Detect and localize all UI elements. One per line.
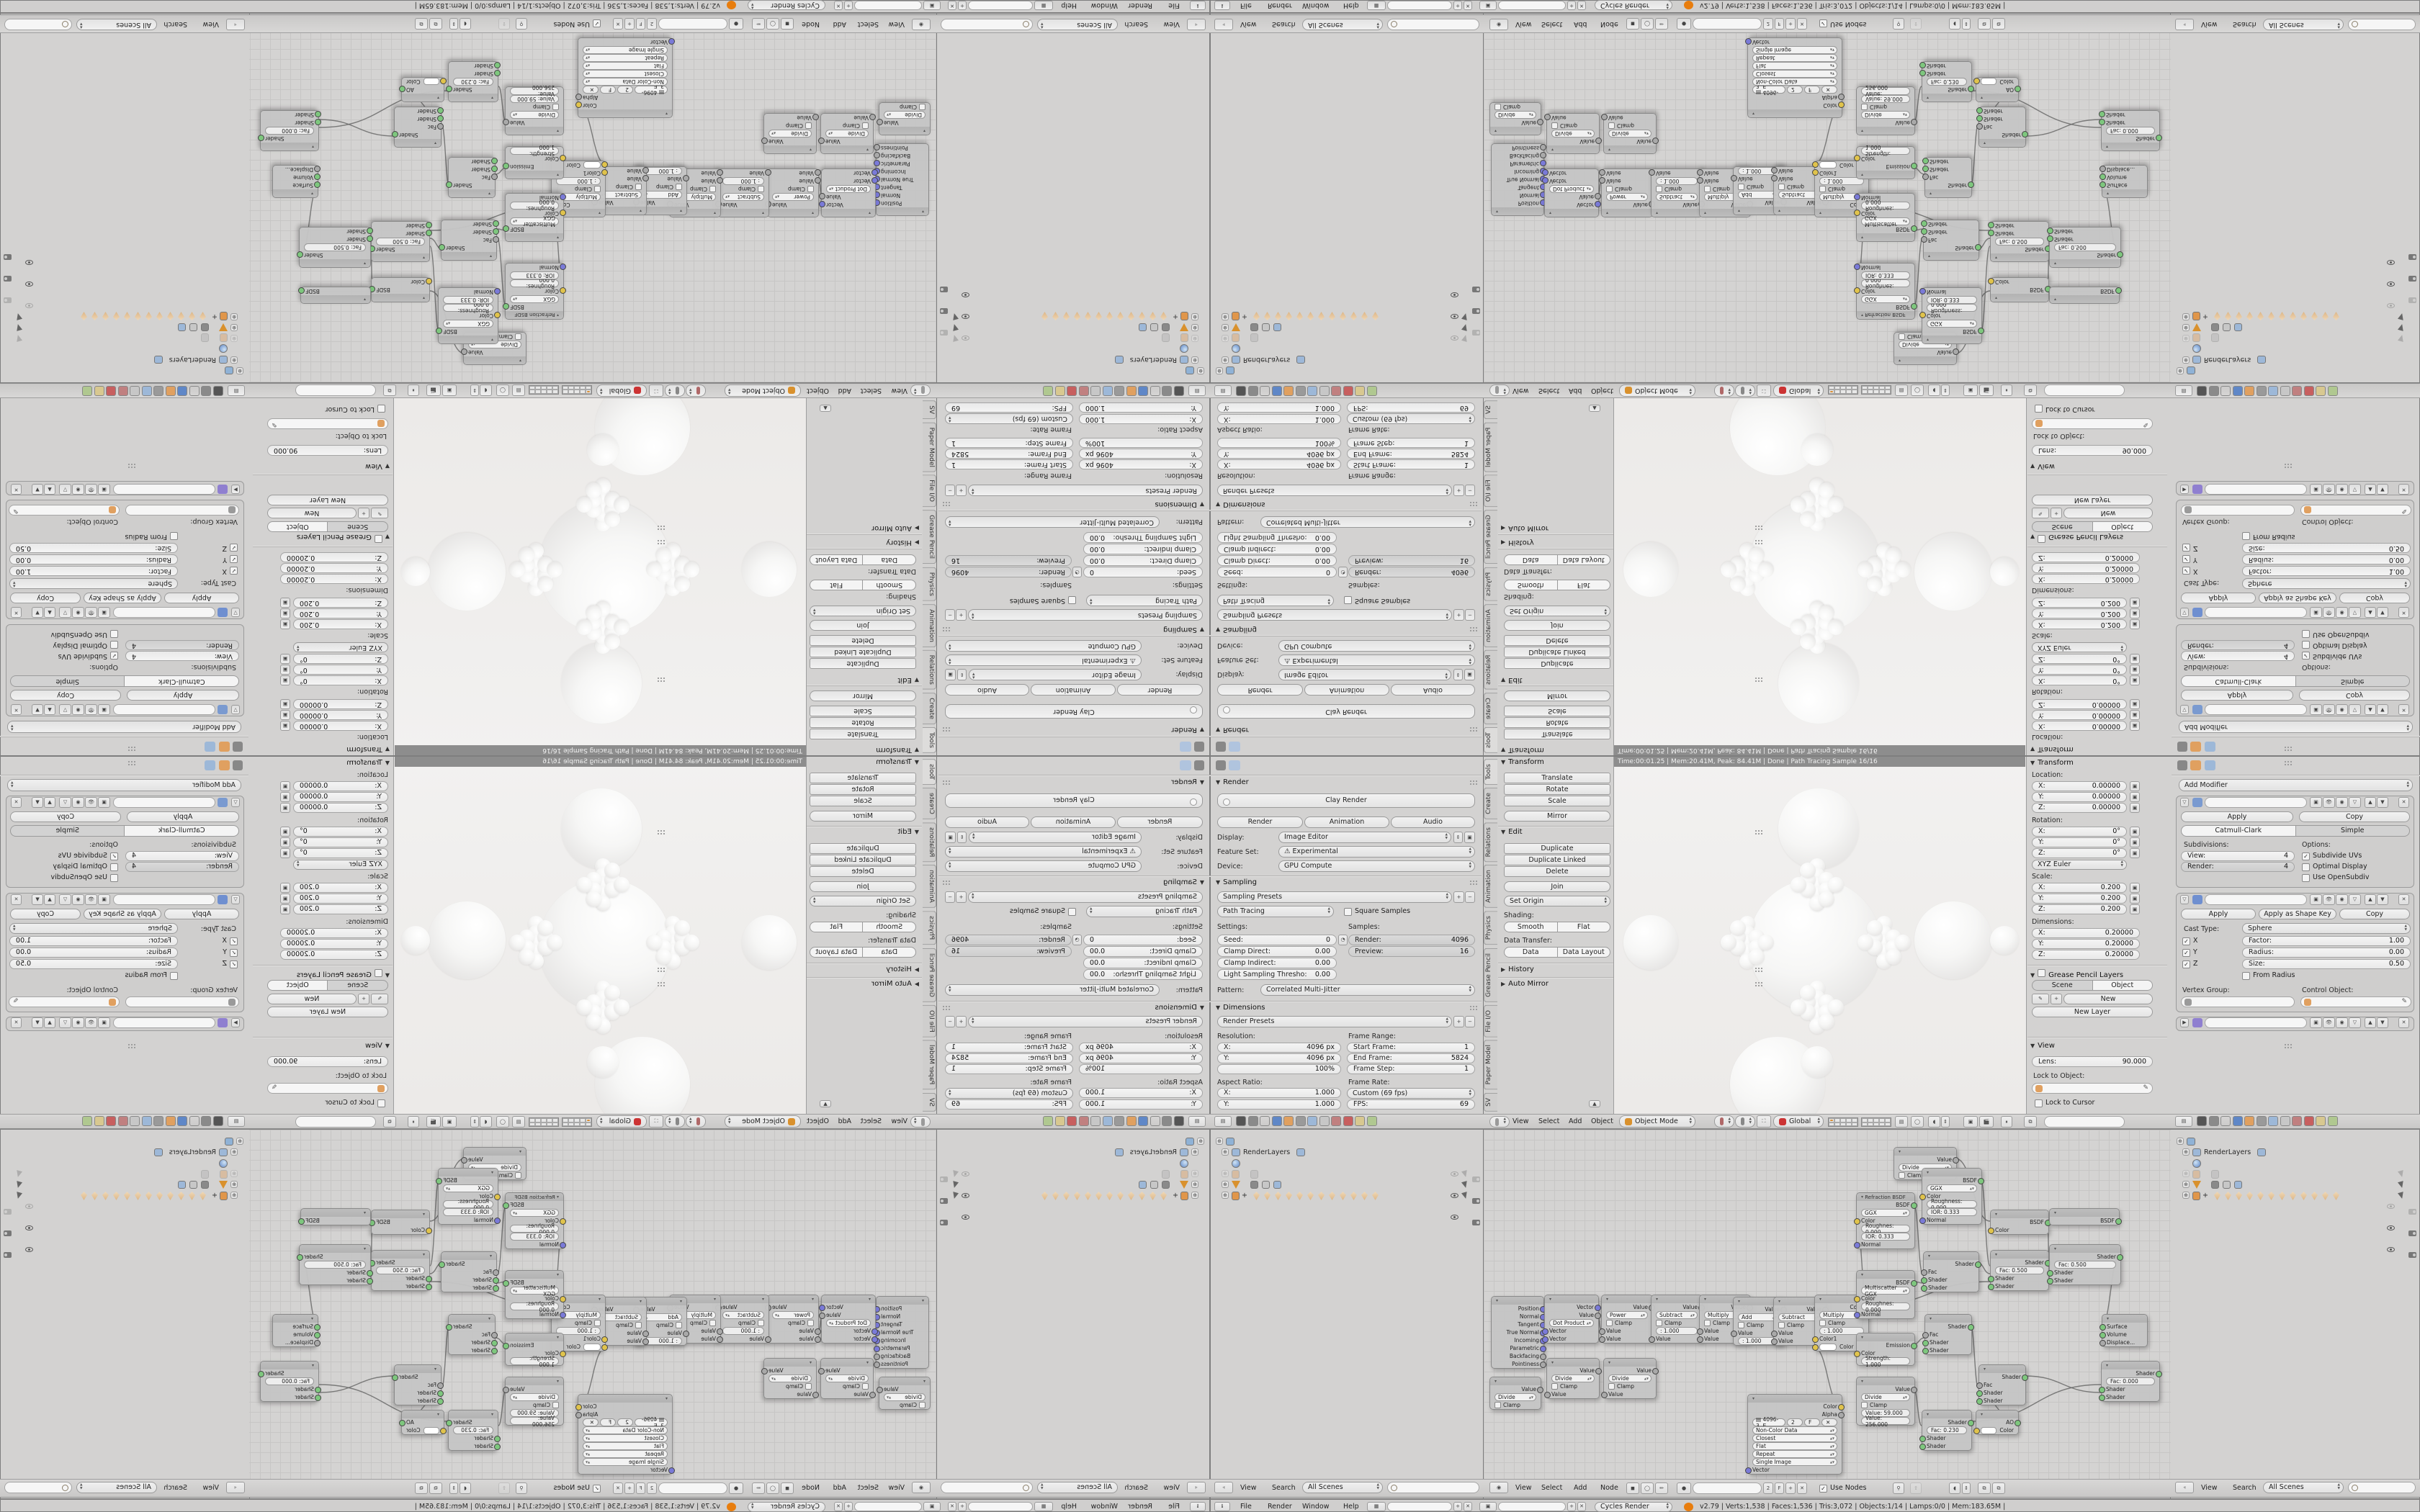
field-frame-step[interactable]: Frame Step:1 [1347, 438, 1475, 448]
input-socket[interactable] [426, 1276, 432, 1282]
input-socket[interactable] [1988, 1276, 1994, 1282]
menu-view[interactable]: View [876, 20, 905, 27]
image-users[interactable]: 2 [617, 1418, 633, 1426]
checkbox-icon[interactable] [919, 104, 926, 110]
output-socket[interactable] [575, 94, 582, 100]
dropdown-render-presets[interactable]: Render Presets▲▼ [968, 485, 1203, 496]
node-refraction-bsdf[interactable]: ▾ Refraction BSDFBSDFGGX▲▼ColorRoughnes:… [505, 263, 564, 320]
button-clay-render[interactable]: Clay Render [1217, 704, 1475, 719]
output-socket[interactable] [392, 131, 398, 138]
search-field[interactable] [941, 1482, 1033, 1493]
tab-render-layers-icon[interactable] [1248, 1116, 1258, 1126]
input-socket[interactable] [494, 288, 501, 294]
toolshelf-tab-tools[interactable]: Tools [923, 727, 936, 753]
node-mix-shader[interactable]: ▾ ShaderFacShaderShader [448, 157, 496, 198]
tool-button-blank[interactable]: 👁 [2323, 894, 2335, 905]
input-socket[interactable] [367, 228, 373, 234]
segment-simple[interactable]: Simple [2296, 675, 2411, 687]
node-mix-shader[interactable]: ▾ ShaderFac: 0.000ShaderShader [2101, 1361, 2160, 1402]
menu-search[interactable]: Search [158, 20, 187, 27]
field-fps[interactable]: FPS:69 [1347, 402, 1475, 413]
input-field[interactable] [295, 1116, 376, 1128]
renderable-camera-icon[interactable] [1472, 308, 1480, 314]
segmented-smooth-flat[interactable]: SmoothFlat [810, 922, 916, 932]
tab-constraints-icon[interactable] [1115, 1116, 1125, 1126]
menu-add[interactable]: Add [817, 20, 846, 27]
lock-icon[interactable]: ▣ [2130, 619, 2140, 629]
dropdown-xyz-euler[interactable]: XYZ Euler▲▼ [293, 642, 388, 652]
field-y[interactable]: Y:0.200 [293, 608, 388, 618]
menu-select[interactable]: Select [853, 387, 882, 394]
checkbox-from-radius[interactable]: From Radius [99, 972, 178, 979]
field-y[interactable]: Y:4096 px [1217, 1053, 1341, 1063]
output-socket[interactable] [1975, 1261, 1981, 1268]
output-socket[interactable] [818, 1368, 825, 1374]
tool-button-blank[interactable]: ⇕ [957, 669, 967, 680]
node-mix-shader[interactable]: ▾ ShaderFac: 0.230ShaderShader [1922, 61, 1972, 102]
input-field[interactable] [2205, 797, 2307, 808]
tool-button-blank[interactable]: ▲ [2365, 704, 2376, 715]
node-dropdown-flat[interactable]: Flat▲▼ [1752, 62, 1837, 70]
field-z[interactable]: Z:0.20000 [280, 950, 388, 960]
visibility-eye-icon[interactable] [962, 336, 969, 341]
output-socket[interactable] [874, 1346, 880, 1352]
tool-button-blank[interactable]: ▶ [231, 1018, 240, 1027]
tab-physics-icon[interactable] [83, 1116, 93, 1126]
node-field[interactable]: Roughnes: 0.000 [510, 202, 559, 210]
node-material-output[interactable]: ▾ SurfaceVolumeDisplace... [2102, 165, 2148, 198]
checkbox-icon[interactable] [1656, 186, 1662, 192]
checkbox-icon[interactable] [1608, 1383, 1615, 1390]
layers-widget[interactable] [562, 385, 592, 395]
field-light-sampling-thresho[interactable]: Light Sampling Thresho:0.00 [1083, 532, 1203, 543]
renderable-camera-icon[interactable] [2408, 297, 2416, 303]
tab-object-data-icon[interactable] [130, 1116, 140, 1126]
output-socket[interactable] [1838, 1404, 1845, 1410]
button-audio[interactable]: Audio [1391, 684, 1475, 696]
input-socket[interactable] [437, 1390, 444, 1397]
field-clamp-indirect[interactable]: Clamp Indirect:0.00 [1217, 544, 1337, 554]
lock-icon[interactable]: ▣ [2130, 792, 2140, 802]
button-copy[interactable]: Copy [10, 593, 81, 603]
node-dropdown-divide[interactable]: Divide▲▼ [768, 1374, 812, 1382]
input-socket[interactable] [494, 1444, 501, 1450]
input-field[interactable] [2205, 484, 2307, 495]
node-dropdown-single-image[interactable]: Single Image▲▼ [583, 46, 668, 54]
tool-button-blank[interactable]: ▽ [231, 608, 240, 617]
output-socket[interactable] [2022, 1374, 2028, 1381]
button-apply-as-shape-key[interactable]: Apply as Shape Key [84, 909, 161, 919]
output-socket[interactable] [874, 1362, 880, 1368]
tool-button-blank[interactable]: ⇕ [470, 384, 479, 396]
field-clamp-direct[interactable]: Clamp Direct:0.00 [1217, 555, 1337, 566]
input-socket[interactable] [491, 1348, 498, 1354]
lock-icon[interactable]: ▣ [2130, 665, 2140, 675]
tab-modifiers-icon[interactable] [1307, 1116, 1317, 1126]
menu-window[interactable]: Window [1302, 1503, 1334, 1511]
field-render[interactable]: Render:4096 [1348, 567, 1475, 577]
input-field[interactable] [113, 797, 215, 808]
button-animation[interactable]: Animation [1304, 816, 1389, 828]
input-socket[interactable] [1697, 1336, 1703, 1343]
tool-button-blank[interactable]: ⛶ [1757, 1115, 1771, 1128]
output-socket[interactable] [877, 1387, 883, 1393]
tool-button-blank[interactable]: ▽ [231, 705, 240, 714]
field-z[interactable]: Z:0.00000 [2032, 803, 2127, 813]
dropdown-gpu-compute[interactable]: GPU Compute▲▼ [945, 640, 1142, 652]
panel-header-auto-mirror[interactable]: ▶Auto Mirror [1501, 981, 1602, 988]
fake-user-button[interactable]: F [1804, 1418, 1820, 1426]
input-socket[interactable] [812, 114, 819, 120]
tool-button-blank[interactable]: − [945, 609, 955, 621]
expand-icon[interactable]: ⊕ [1191, 1181, 1198, 1188]
tool-button-blank[interactable]: + [1453, 485, 1464, 496]
button-delete[interactable]: Delete [1504, 866, 1610, 877]
renderable-camera-icon[interactable] [940, 1198, 948, 1204]
node-field[interactable]: Fac: 0.000 [265, 127, 314, 135]
visibility-eye-icon[interactable] [1451, 1171, 1458, 1176]
field-size[interactable]: Size:0.50 [2242, 959, 2411, 969]
field-start-frame[interactable]: Start Frame:1 [1347, 459, 1475, 469]
node-field[interactable]: Roughnes: 0.000 [1861, 279, 1910, 287]
search-field[interactable] [1387, 1482, 1479, 1493]
menu-search[interactable]: Search [1119, 1485, 1148, 1492]
tool-button-blank[interactable]: ◉ [2336, 704, 2348, 715]
field-end-frame[interactable]: End Frame:5824 [1347, 449, 1475, 459]
menu-search[interactable]: Search [1272, 20, 1301, 27]
field-z[interactable]: Z:0.20000 [2032, 950, 2140, 960]
node-math-divide[interactable]: ▾ ValueDivide▲▼ClampValue [1546, 1358, 1600, 1399]
tool-button-blank[interactable]: ◔ [1338, 567, 1348, 577]
renderable-camera-icon[interactable] [1472, 1198, 1480, 1204]
output-socket[interactable] [503, 119, 509, 125]
node-bsdf[interactable]: ▾ BSDF [2049, 1208, 2120, 1225]
input-socket[interactable] [315, 1387, 321, 1393]
node-mix-shader[interactable]: ▾ ShaderFac: 0.500ShaderShader [371, 221, 430, 262]
renderable-camera-icon[interactable] [4, 1252, 12, 1258]
checkbox-subdivide-uvs[interactable]: ✓Subdivide UVs [32, 852, 118, 860]
overlap-icon-a[interactable]: ⧉ [429, 1482, 442, 1494]
overlap-icon-b[interactable]: ⧉ [1992, 18, 2005, 30]
field-y[interactable]: Y:0° [293, 665, 388, 675]
render-preview-canvas[interactable]: Time:00:01.25 | Mem:20.41M, Peak: 84.41M… [395, 757, 807, 1114]
button-new-layer[interactable]: New Layer [267, 1007, 388, 1017]
dropdown-sampling-presets[interactable]: Sampling Presets▲▼ [1217, 609, 1452, 621]
node-field[interactable]: Roughnes: 0.000 [510, 1302, 559, 1310]
segment-catmull-clark[interactable]: Catmull-Clark [2181, 825, 2296, 837]
tool-button-blank[interactable]: ⏸ [2001, 1116, 2012, 1128]
node-geometry[interactable]: ▾ PositionNormalTangentTrue NormalIncomi… [1491, 1296, 1544, 1369]
button-duplicate-linked[interactable]: Duplicate Linked [1504, 855, 1610, 865]
menu-select[interactable]: Select [850, 20, 879, 27]
field-clamp-direct[interactable]: Clamp Direct:0.00 [1083, 946, 1203, 957]
checkbox-subdivide-uvs[interactable]: ✓Subdivide UVs [2302, 852, 2388, 860]
snap-magnet-icon[interactable]: ◖ [1949, 18, 1960, 30]
dropdown-global[interactable]: Global▲▼ [596, 384, 647, 397]
node-dropdown-flat[interactable]: Flat▲▼ [1752, 1442, 1837, 1450]
button-apply-as-shape-key[interactable]: Apply as Shape Key [84, 593, 161, 603]
tab-material-icon[interactable] [118, 1116, 128, 1126]
layers-widget[interactable] [1828, 385, 1858, 395]
tool-button-blank[interactable]: ▣ [442, 384, 457, 396]
panel-header-render[interactable]: ▼Render [1216, 779, 1360, 786]
slot-number[interactable]: 2 [1763, 18, 1773, 30]
node-image-texture[interactable]: ▾ ColorAlpha▤ 4096-3..E2F✕Non-Color Data… [1747, 1394, 1842, 1475]
lock-icon[interactable]: ▣ [280, 654, 290, 664]
expand-icon[interactable]: ⊕ [2182, 1181, 2190, 1188]
node-dropdown-ggx[interactable]: GGX▲▼ [510, 295, 559, 303]
output-socket[interactable] [1595, 201, 1601, 207]
input-socket[interactable] [493, 1285, 499, 1292]
node-field[interactable]: Strength: 1.000 [1861, 147, 1910, 155]
dropdown-xyz-euler[interactable]: XYZ Euler▲▼ [2032, 860, 2127, 870]
checkbox-icon[interactable] [1704, 186, 1711, 192]
material-name-field[interactable] [658, 1482, 727, 1494]
field-fps[interactable]: FPS:69 [945, 1099, 1073, 1110]
icon-dropdown-mesh-cube-icon[interactable]: ▲▼ [910, 1116, 931, 1128]
node-field[interactable]: IOR: 0.333 [443, 296, 493, 304]
node-dropdown-power[interactable]: Power▲▼ [1606, 1311, 1648, 1319]
field-y[interactable]: Y:1.000 [1217, 1099, 1341, 1110]
lock-icon[interactable]: ▣ [2130, 827, 2140, 837]
output-socket[interactable] [874, 152, 880, 158]
field-y[interactable]: Y:0.20000 [2032, 563, 2140, 573]
segment-catmull-clark[interactable]: Catmull-Clark [2181, 675, 2296, 687]
toolshelf-tab-physics[interactable]: Physics [923, 911, 936, 945]
field-z[interactable]: Z:0° [2032, 848, 2127, 858]
node-field[interactable]: Roughness: 0.000 [1927, 304, 1977, 312]
renderable-camera-icon[interactable] [1472, 1220, 1480, 1225]
field-render[interactable]: Render:4 [125, 862, 239, 872]
dropdown-sphere[interactable]: Sphere▲▼ [9, 578, 178, 589]
go-parent-node-button[interactable]: ⇧ [498, 18, 510, 30]
field-x[interactable]: X:1.000 [1079, 1088, 1203, 1098]
tab-render-camera-icon[interactable] [1236, 386, 1246, 396]
panel-header-grease-pencil-layers[interactable]: ▼Grease Pencil Layers [267, 969, 390, 976]
node-math-divide[interactable]: ▾ ValueDivide▲▼ClampValue [1603, 1358, 1657, 1399]
expand-icon[interactable]: ⊕ [230, 1181, 238, 1188]
tool-button-blank[interactable]: 👁 [2323, 484, 2335, 495]
slot-number[interactable]: 2 [647, 18, 657, 30]
node-mix-shader[interactable]: ▾ ShaderFacShaderShader [1924, 1314, 1972, 1355]
dropdown-add-modifier[interactable]: Add Modifier▲▼ [7, 721, 241, 733]
node-bsdf[interactable]: ▾ BSDF [300, 1208, 371, 1225]
input-socket[interactable] [493, 236, 499, 243]
tool-button-blank[interactable]: ✕ [2398, 894, 2409, 905]
plus-icon[interactable]: + [1242, 1192, 1247, 1200]
panel-header-sampling[interactable]: ▼Sampling [1216, 626, 1360, 633]
button-mirror[interactable]: Mirror [1504, 690, 1610, 701]
segmented-scene-object[interactable]: SceneObject [2032, 521, 2153, 532]
visibility-eye-icon[interactable] [25, 260, 33, 265]
node-bsdf[interactable]: ▾ BSDF [300, 287, 371, 304]
input-socket[interactable] [1745, 1467, 1752, 1474]
field-x[interactable]: X:0.00000 [2032, 721, 2127, 731]
dropdown-image-editor[interactable]: Image Editor▲▼ [969, 669, 1142, 680]
tab-scene-icon[interactable] [189, 1116, 200, 1126]
checkbox-x[interactable]: ✓X [2182, 567, 2211, 575]
checkbox-icon[interactable] [1819, 1320, 1826, 1326]
layers-widget[interactable] [529, 1117, 559, 1127]
input-socket[interactable] [642, 167, 649, 174]
lock-icon[interactable]: ▣ [2130, 883, 2140, 893]
node-math-divide[interactable]: ▾ ValueDivide▲▼ClampValue [1546, 113, 1600, 154]
visibility-eye-icon[interactable] [962, 1193, 969, 1198]
dropdown-sampling-presets[interactable]: Sampling Presets▲▼ [968, 609, 1203, 621]
expand-icon[interactable]: ⊕ [1191, 324, 1198, 331]
input-socket[interactable] [560, 155, 566, 161]
tool-button-blank[interactable]: ▤ [1895, 384, 1908, 396]
output-socket[interactable] [1537, 1387, 1543, 1393]
button-copy[interactable]: Copy [2339, 593, 2410, 603]
expand-icon[interactable]: ⊕ [2177, 1138, 2184, 1145]
tool-button-blank[interactable]: ▤ [512, 1116, 525, 1128]
output-socket[interactable] [819, 193, 825, 199]
visibility-eye-icon[interactable] [1451, 1193, 1458, 1198]
input-field[interactable] [113, 894, 215, 905]
segmented-scene-object[interactable]: SceneObject [267, 521, 388, 532]
input-socket[interactable] [1731, 175, 1737, 181]
close-layout-button[interactable]: ✕ [948, 1502, 956, 1511]
lock-icon[interactable]: ▣ [2130, 848, 2140, 858]
input-socket[interactable] [1922, 158, 1929, 164]
input-socket[interactable] [1601, 1392, 1608, 1398]
button-copy[interactable]: Copy [2339, 909, 2410, 919]
input-socket[interactable] [717, 1328, 723, 1335]
field-y[interactable]: Y:0.200 [293, 894, 388, 904]
render-preview-canvas[interactable]: Time:00:01.25 | Mem:20.41M, Peak: 84.41M… [1613, 398, 2025, 755]
tab-object-data-icon[interactable] [2280, 386, 2290, 396]
lock-icon[interactable]: ▣ [2130, 894, 2140, 904]
node-dropdown-power[interactable]: Power▲▼ [772, 193, 814, 201]
panel-header-auto-mirror[interactable]: ▶Auto Mirror [818, 981, 919, 988]
input-socket[interactable] [560, 1351, 566, 1357]
node-multiscatter-bsdf[interactable]: ▾ BSDFMultiscatter GGX▲▼ColorRoughnes: 0… [505, 1270, 564, 1319]
input-socket[interactable] [1854, 264, 1860, 270]
fake-user-button[interactable]: F [600, 1418, 616, 1426]
scene-icon-dropdown[interactable]: ▣ [923, 1502, 941, 1511]
tab-object-icon[interactable] [2244, 1116, 2254, 1126]
node-field[interactable]: IOR: 0.333 [510, 271, 559, 279]
input-socket[interactable] [2099, 1324, 2106, 1331]
render-preview-canvas[interactable]: Time:00:01.25 | Mem:20.41M, Peak: 84.41M… [395, 398, 807, 755]
node-field[interactable]: IOR: 0.333 [443, 1208, 493, 1216]
node-field[interactable]: Fac: 0.500 [376, 238, 425, 246]
tab-render-layers-icon[interactable] [1248, 386, 1258, 396]
lock-icon[interactable]: ▣ [2130, 699, 2140, 709]
checkbox-icon[interactable] [635, 184, 642, 190]
shader-object-icon[interactable]: ◼ [1626, 1482, 1639, 1494]
toolshelf-tab-physics[interactable]: Physics [923, 567, 936, 600]
tool-button-blank[interactable]: − [1465, 1016, 1475, 1027]
field-preview[interactable]: Preview:16 [1348, 946, 1475, 957]
node-refraction-bsdf[interactable]: ▾ Refraction BSDFBSDFGGX▲▼ColorRoughnes:… [1856, 263, 1915, 320]
image-selector[interactable]: ▤ 4096-3..E [1752, 86, 1785, 94]
plus-icon[interactable]: + [212, 312, 218, 320]
expand-icon[interactable]: ⊕ [2182, 356, 2190, 364]
node-dropdown-dot-product[interactable]: Dot Product▲▼ [1549, 185, 1594, 193]
segment-data[interactable]: Data [1504, 947, 1558, 958]
output-socket[interactable] [461, 1157, 467, 1164]
output-socket[interactable] [874, 144, 880, 150]
dropdown-sphere[interactable]: Sphere▲▼ [9, 923, 178, 934]
button-render[interactable]: Render [1117, 684, 1203, 696]
button-duplicate-linked[interactable]: Duplicate Linked [810, 647, 916, 657]
tab-material-icon[interactable] [1331, 386, 1341, 396]
dropdown-render-presets[interactable]: Render Presets▲▼ [968, 1016, 1203, 1027]
image-selector[interactable]: ▤ 4096-3..E [1752, 1418, 1785, 1426]
input-socket[interactable] [765, 169, 771, 176]
lock-icon[interactable]: ▣ [280, 803, 290, 813]
button-clay-render[interactable]: Clay Render [945, 704, 1203, 719]
tab-physics-icon[interactable] [2328, 1116, 2338, 1126]
output-socket[interactable] [1911, 225, 1917, 232]
node-refraction-bsdf[interactable]: ▾ BSDFGGX▲▼ColorRoughness: 0.000IOR: 0.3… [1922, 287, 1982, 344]
menu-window[interactable]: Window [1086, 1, 1118, 9]
checkbox-icon[interactable] [1608, 122, 1615, 129]
field-y[interactable]: Y:0.20000 [2032, 939, 2140, 949]
lock-icon[interactable]: ▣ [2130, 710, 2140, 720]
expand-icon[interactable]: ⊕ [2182, 335, 2190, 342]
node-field[interactable]: IOR: 0.333 [1861, 1233, 1910, 1241]
tool-button-blank[interactable]: ▽ [2349, 484, 2361, 495]
snap-magnet-icon[interactable]: ◖ [1949, 1482, 1960, 1494]
info-editor-dropdown[interactable]: ℹ [1190, 1, 1206, 10]
node-field[interactable]: Value: 256.000 [1861, 1417, 1910, 1425]
segmented-data-data-layout[interactable]: DataData Layout [1504, 947, 1610, 958]
input-socket[interactable] [367, 1278, 373, 1284]
menu-add[interactable]: Add [830, 1118, 851, 1125]
node-mix-shader[interactable]: ▾ ShaderFac: 0.500ShaderShader [1990, 221, 2049, 262]
segment-data[interactable]: Data [1504, 554, 1558, 565]
node-dropdown-ggx[interactable]: GGX▲▼ [510, 1209, 559, 1217]
lock-icon[interactable]: ▣ [280, 699, 290, 709]
overlap-icon-b[interactable]: ⧉ [1992, 1482, 2005, 1494]
button-duplicate-linked[interactable]: Duplicate Linked [810, 855, 916, 865]
tool-button-blank[interactable]: ◉ [2336, 484, 2348, 495]
node-dropdown-divide[interactable]: Divide▲▼ [1551, 1374, 1595, 1382]
tool-button-blank[interactable]: ▣ [2310, 607, 2322, 618]
engine-dropdown[interactable]: Cycles Render▲▼ [1595, 1502, 1672, 1512]
input-field[interactable] [2205, 607, 2307, 618]
input-socket[interactable] [494, 62, 501, 68]
node-mix-shader[interactable]: ▾ ShaderFac: 0.000ShaderShader [260, 1361, 319, 1402]
segmented-catmull-clark-simple[interactable]: Catmull-ClarkSimple [10, 675, 239, 687]
eyedropper-icon[interactable]: ✎ [272, 420, 277, 427]
tab-physics-icon[interactable] [1367, 386, 1377, 396]
tool-button-blank[interactable]: 👁 [85, 484, 97, 495]
output-socket[interactable] [2115, 287, 2122, 294]
input-socket[interactable] [1976, 1382, 1983, 1389]
tool-button-blank[interactable]: ◉ [2336, 894, 2348, 905]
dropdown-path-tracing[interactable]: Path Tracing▲▼ [1217, 906, 1334, 917]
checkbox-z[interactable]: ✓Z [209, 960, 238, 968]
shader-object-icon[interactable]: ◼ [1626, 18, 1639, 30]
button-apply[interactable]: Apply [2181, 909, 2256, 919]
field-x[interactable]: X:0.200 [2032, 619, 2127, 629]
tool-button-blank[interactable]: ▲ [2365, 894, 2376, 905]
tool-button-blank[interactable]: ✕ [11, 607, 22, 618]
node-field[interactable]: Value: 256.000 [510, 1417, 559, 1425]
expand-icon[interactable]: ⊕ [1197, 1138, 1204, 1145]
tool-button-blank[interactable]: ▣ [1963, 384, 1978, 396]
material-icon-dropdown[interactable]: ● [729, 1482, 743, 1494]
checkbox-lock-to-cursor[interactable]: Lock to Cursor [299, 1099, 385, 1107]
menu-view[interactable]: View [1151, 1485, 1180, 1492]
input-socket[interactable] [1922, 1332, 1929, 1338]
plus-icon[interactable]: + [2202, 312, 2208, 320]
renderable-camera-icon[interactable] [2408, 1230, 2416, 1236]
